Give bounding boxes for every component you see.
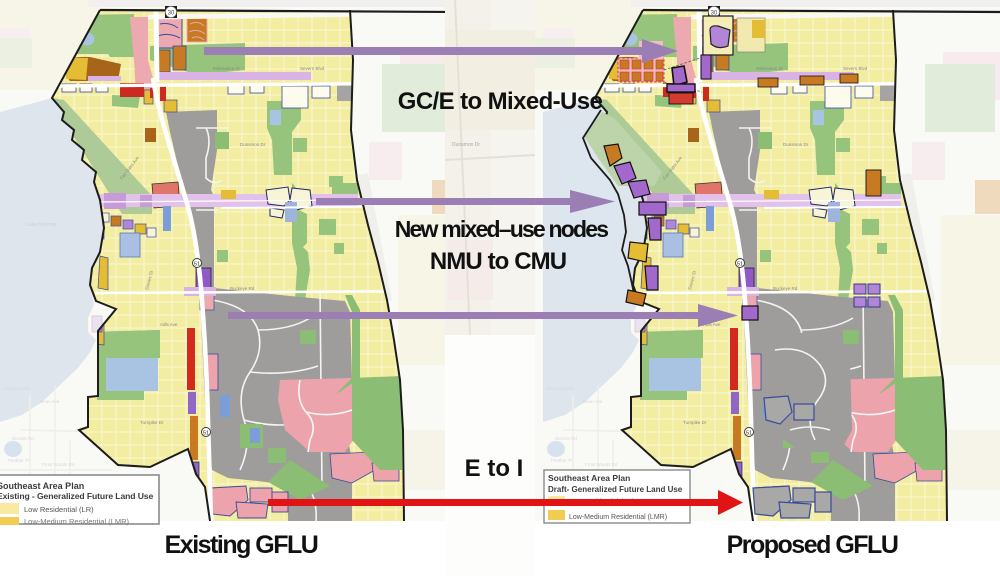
svg-text:Low Residential (LR): Low Residential (LR) <box>24 505 94 514</box>
svg-text:E to I: E to I <box>465 455 524 482</box>
svg-text:Proposed GFLU: Proposed GFLU <box>727 531 898 559</box>
svg-text:NMU to CMU: NMU to CMU <box>430 248 566 275</box>
svg-text:Low-Medium Residential (LMR): Low-Medium Residential (LMR) <box>24 517 130 526</box>
svg-text:New mixed–use nodes: New mixed–use nodes <box>395 216 609 242</box>
svg-text:Low-Medium Residential (LMR): Low-Medium Residential (LMR) <box>569 514 667 521</box>
svg-text:Existing GFLU: Existing GFLU <box>165 531 318 559</box>
svg-text:Dunsmon Dr: Dunsmon Dr <box>452 142 480 148</box>
svg-text:GC/E to Mixed-Use: GC/E to Mixed-Use <box>398 88 603 115</box>
svg-text:Southeast Area Plan: Southeast Area Plan <box>0 481 84 491</box>
svg-text:Draft- Generalized Future Land: Draft- Generalized Future Land Use <box>548 485 683 494</box>
svg-text:Existing - Generalized Future: Existing - Generalized Future Land Use <box>0 491 153 501</box>
svg-text:Southeast Area Plan: Southeast Area Plan <box>548 473 630 483</box>
